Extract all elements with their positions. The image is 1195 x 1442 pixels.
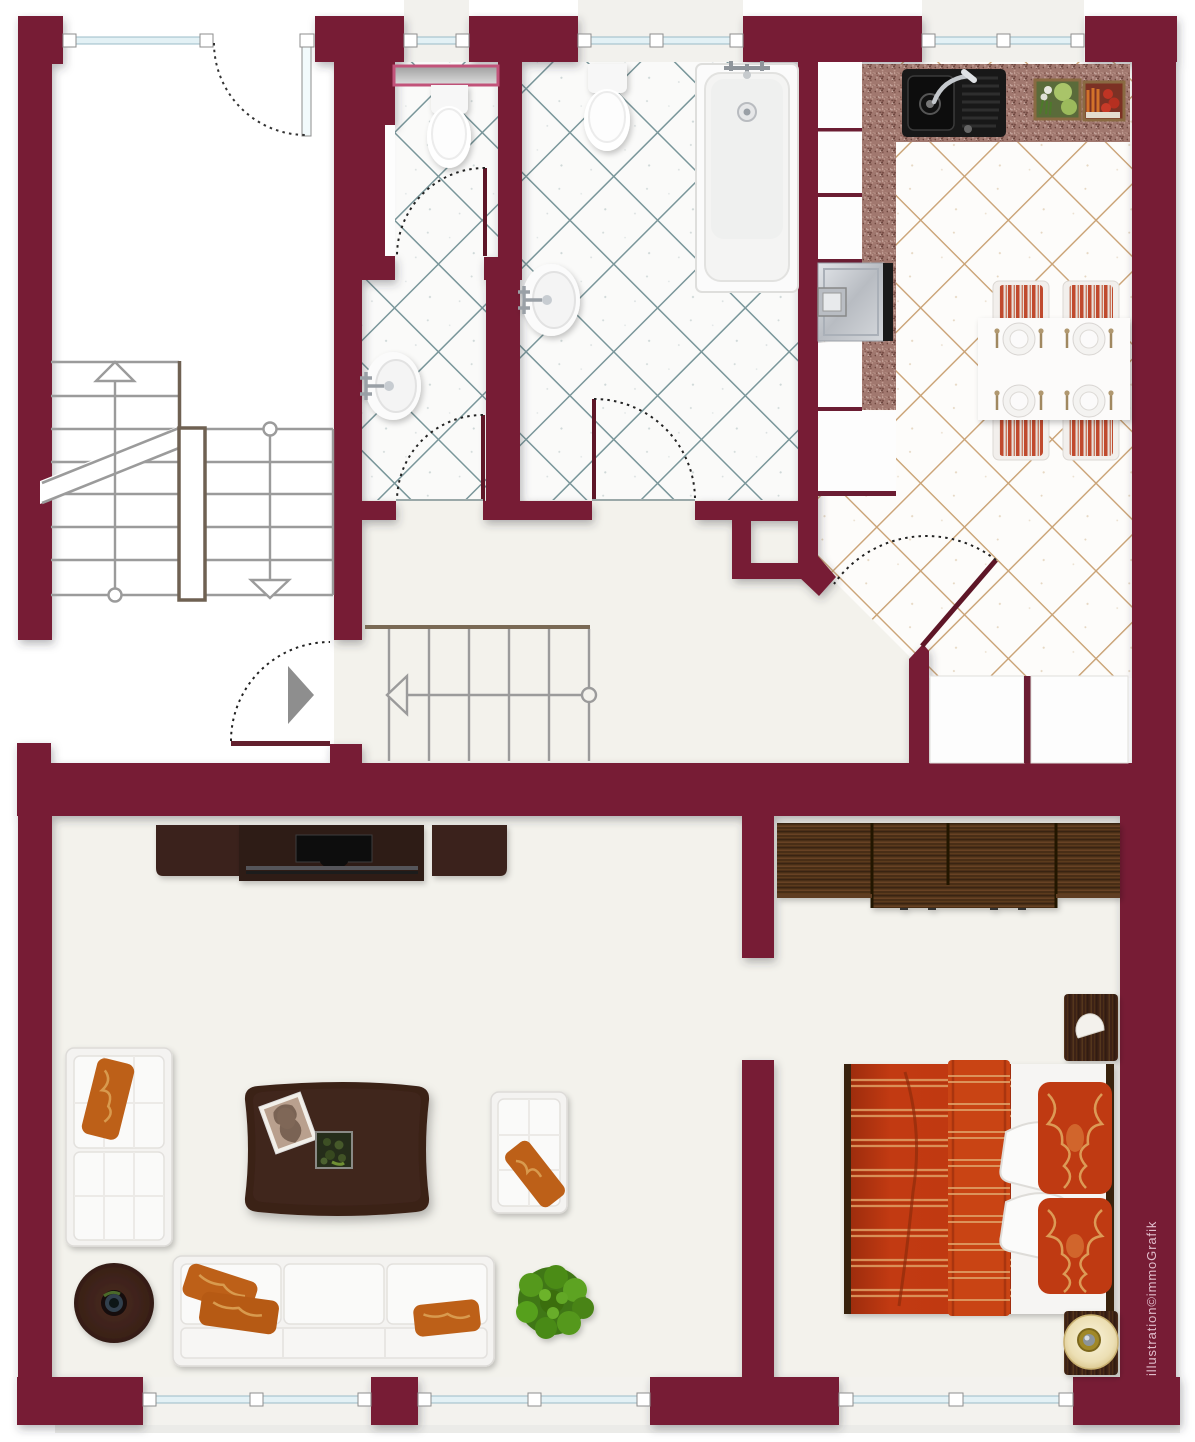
svg-text:illustration©immoGrafik: illustration©immoGrafik [1144,1221,1159,1376]
